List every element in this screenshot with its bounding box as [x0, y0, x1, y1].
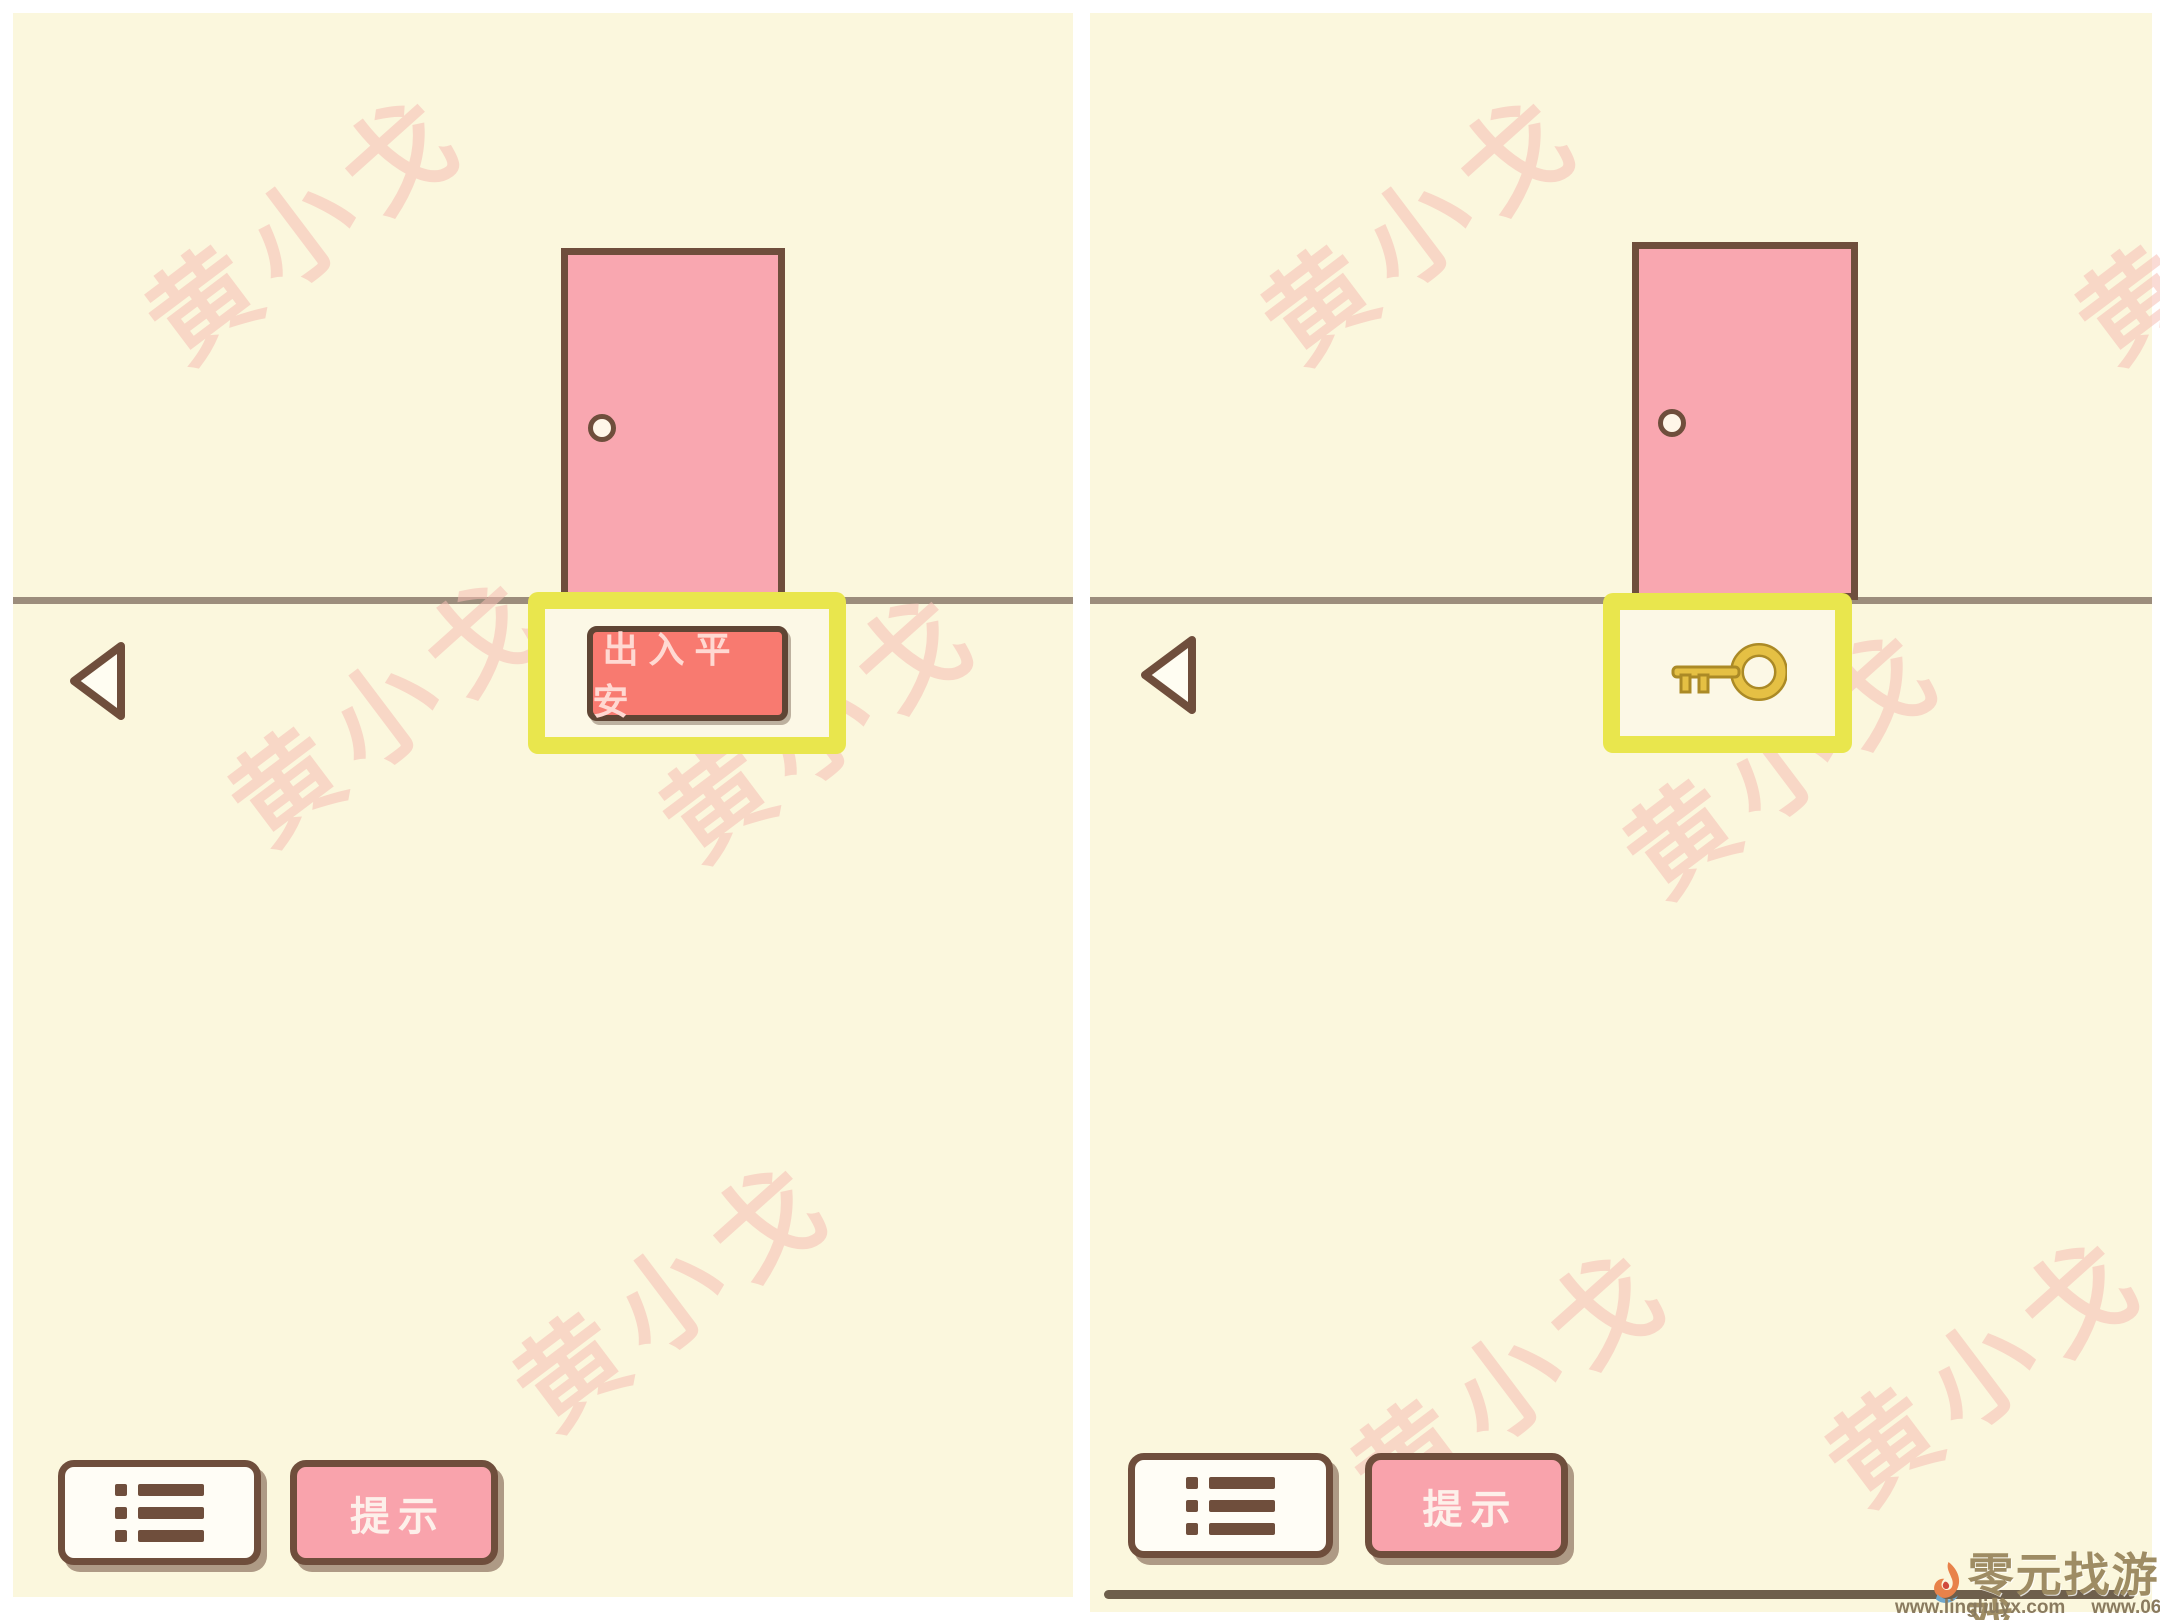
doorknob-icon: [1658, 409, 1686, 437]
hint-button[interactable]: 提示: [1365, 1453, 1568, 1558]
plaque-label: 出入平安: [593, 621, 782, 725]
screenshot-stage: 出入平安 提示: [0, 0, 2160, 1620]
hint-label: 提示: [1415, 1477, 1519, 1535]
back-icon: [65, 639, 129, 723]
site-url-primary: www.lingliuyx.com: [1895, 1597, 2065, 1619]
answer-highlight-box: 出入平安: [528, 592, 846, 754]
hint-button[interactable]: 提示: [290, 1460, 498, 1565]
doorknob-icon: [588, 414, 616, 442]
menu-button[interactable]: [1128, 1453, 1333, 1558]
door-plaque-button[interactable]: 出入平安: [587, 626, 788, 721]
site-url-secondary: www.06zyx.com: [2091, 1597, 2160, 1619]
answer-highlight-box: [1603, 593, 1852, 753]
menu-button[interactable]: [58, 1460, 261, 1565]
menu-list-icon: [115, 1484, 204, 1542]
menu-list-icon: [1186, 1477, 1275, 1535]
back-icon: [1136, 633, 1200, 717]
game-screen-step1: 出入平安 提示: [13, 13, 1073, 1597]
back-button[interactable]: [65, 639, 129, 723]
site-urls: www.lingliuyx.com www.06zyx.com: [1895, 1597, 2160, 1619]
hint-label: 提示: [342, 1484, 446, 1542]
key-icon[interactable]: [1669, 642, 1787, 704]
game-screen-step2: 提示: [1090, 13, 2152, 1612]
back-button[interactable]: [1136, 633, 1200, 717]
